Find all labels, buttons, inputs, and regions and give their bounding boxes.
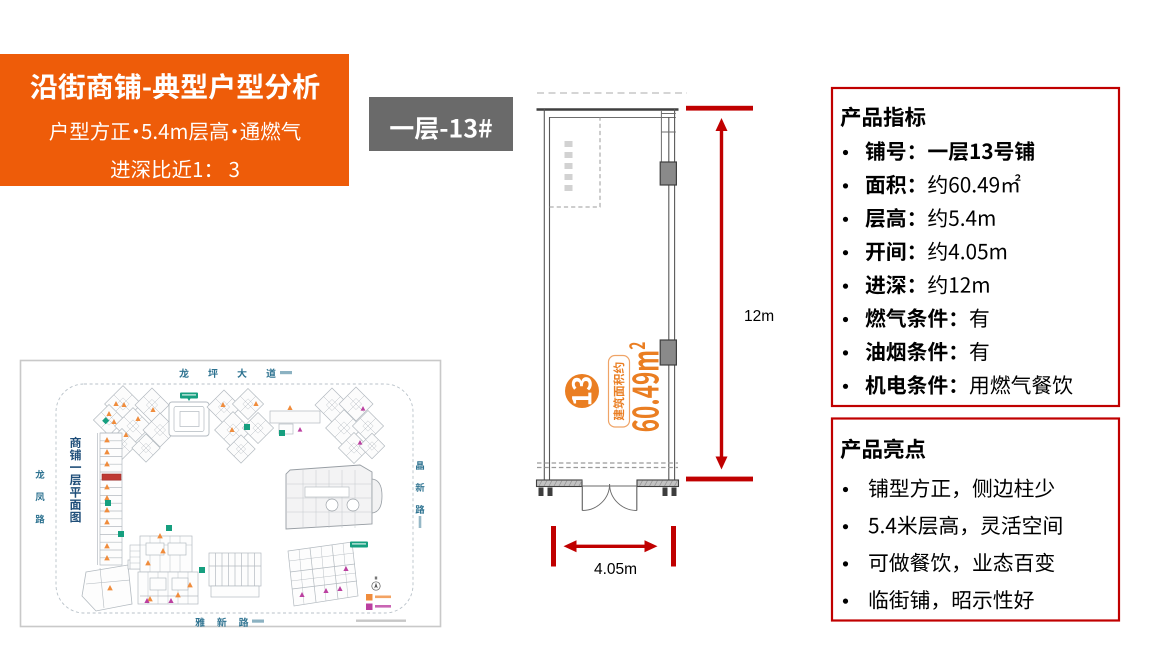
- svg-text:4.05m: 4.05m: [594, 561, 637, 578]
- svg-text:12m: 12m: [744, 308, 774, 325]
